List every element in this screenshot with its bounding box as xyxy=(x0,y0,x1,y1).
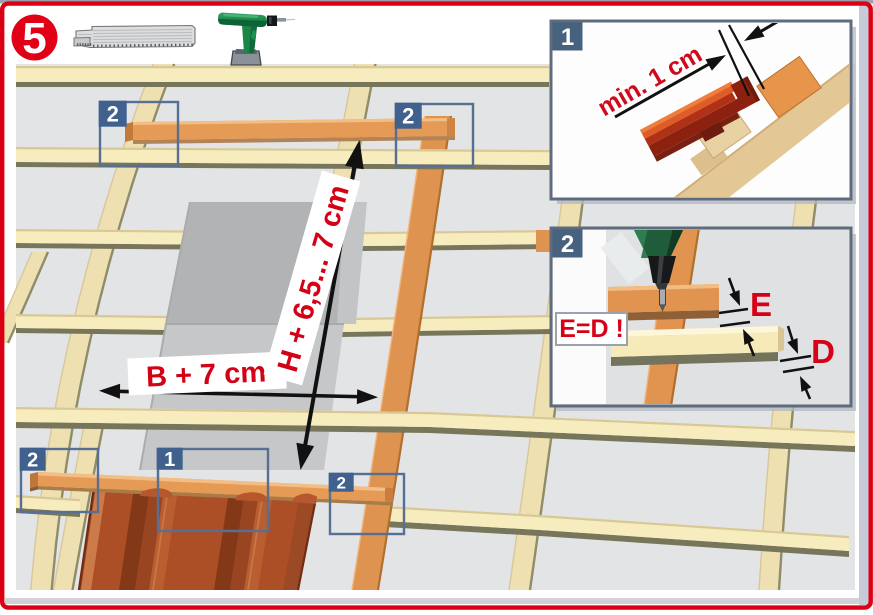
svg-text:B + 7 cm: B + 7 cm xyxy=(145,356,266,393)
svg-text:D: D xyxy=(811,333,835,370)
svg-text:1: 1 xyxy=(164,449,175,471)
svg-text:2: 2 xyxy=(402,104,414,129)
svg-text:2: 2 xyxy=(27,449,38,471)
svg-text:2: 2 xyxy=(107,102,119,127)
svg-text:E: E xyxy=(750,286,772,323)
svg-text:E=D !: E=D ! xyxy=(559,315,624,343)
svg-text:5: 5 xyxy=(22,14,46,63)
svg-text:2: 2 xyxy=(561,231,574,258)
svg-text:2: 2 xyxy=(336,473,345,492)
svg-text:1: 1 xyxy=(561,24,574,51)
